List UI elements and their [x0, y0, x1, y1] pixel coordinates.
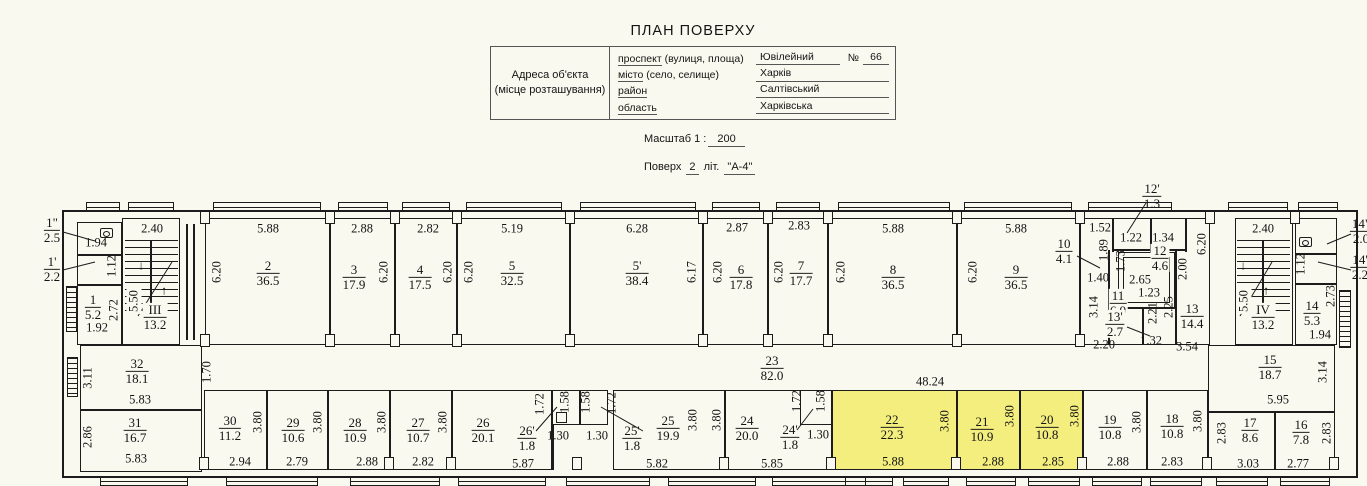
dimension-label: 5.88 [882, 455, 904, 470]
room-number: 18 [1161, 412, 1184, 427]
wall [186, 224, 188, 340]
room-number: 28 [344, 416, 367, 431]
room-number: 1" [44, 216, 60, 231]
room-label: 3011.2 [219, 414, 241, 442]
room-number: 12 [1152, 244, 1169, 259]
window [1092, 477, 1142, 486]
room-number: 24 [736, 414, 759, 429]
room-area: 13.2 [1252, 318, 1275, 332]
room-number: 11 [1110, 289, 1127, 304]
room-label: 1"2.5 [44, 216, 60, 244]
room-number: 5 [501, 259, 524, 274]
pilaster [763, 334, 773, 347]
pilaster [452, 211, 462, 224]
dimension-label: 5.95 [1267, 393, 1289, 408]
room-label: 717.7 [790, 259, 813, 287]
dimension-label: 5.83 [129, 393, 151, 408]
room-area: 32.5 [501, 274, 524, 288]
pilaster [823, 334, 833, 347]
dimension-label: ↑ [161, 284, 167, 299]
room-label: 3116.7 [124, 416, 147, 444]
room-label: IV13.2 [1251, 303, 1276, 331]
room-area: 18.1 [126, 372, 149, 386]
toilet-bowl-icon [1302, 240, 1309, 246]
room-label: 15.2 [85, 293, 101, 321]
dimension-label: 6.17 [685, 261, 700, 283]
room-label: 1910.8 [1099, 413, 1122, 441]
dimension-label: 1.72 [533, 393, 548, 415]
pilaster [698, 211, 708, 224]
room-area: 17.8 [730, 278, 753, 292]
room-label: 417.5 [409, 263, 432, 291]
dimension-label: 2.73 [1324, 285, 1339, 307]
room-area: 7.8 [1293, 433, 1310, 447]
dimension-label: 3.80 [436, 411, 451, 433]
room-area: 2.2 [44, 270, 60, 284]
pilaster [826, 457, 836, 470]
room-area: 22.3 [881, 428, 904, 442]
dimension-label: 3.80 [686, 409, 701, 431]
dimension-label: 5.85 [761, 457, 783, 472]
room-area: 36.5 [257, 274, 280, 288]
room-label: 25'1.8 [622, 424, 641, 452]
wall-hatch [67, 357, 78, 397]
room-area: 36.5 [1005, 278, 1028, 292]
window [1028, 477, 1080, 486]
room [556, 412, 567, 423]
window [350, 477, 440, 486]
room-number: 14' [1350, 253, 1367, 268]
room-area: 19.9 [657, 429, 680, 443]
room-area: 10.8 [1099, 428, 1122, 442]
room-number: 7 [790, 259, 813, 274]
pilaster [390, 334, 400, 347]
window [338, 202, 388, 212]
dimension-label: 6.20 [377, 261, 392, 283]
room-label: 2810.9 [344, 416, 367, 444]
room-number: 20 [1036, 413, 1059, 428]
room-area: 2.7 [1105, 325, 1124, 339]
room-label: 1314.4 [1181, 302, 1204, 330]
dimension-label: ↓ [138, 259, 144, 274]
dimension-label: 2.82 [417, 222, 439, 237]
dimension-label: 6.20 [966, 261, 981, 283]
room-area: 1.8 [622, 439, 641, 453]
dimension-label: 1.58 [814, 390, 829, 412]
dimension-label: 2.87 [726, 221, 748, 236]
room-label: 3218.1 [126, 357, 149, 385]
dimension-label: 1.58 [579, 391, 594, 413]
dimension-label: 1.32 [1140, 334, 1162, 349]
room-label: 2420.0 [736, 414, 759, 442]
pilaster [565, 211, 575, 224]
room-number: 13 [1181, 302, 1204, 317]
room-area: 1.8 [780, 438, 799, 452]
room-label: 124.6 [1151, 244, 1170, 272]
room-label: 2519.9 [657, 414, 680, 442]
dimension-label: 1.12 [1294, 253, 1309, 275]
window [100, 477, 188, 486]
pilaster [1205, 211, 1215, 224]
window [903, 477, 949, 486]
dimension-label: 1.12 [105, 255, 120, 277]
pilaster [572, 457, 582, 470]
dimension-label: 2.40 [141, 222, 163, 237]
room-label: 5'38.4 [626, 259, 649, 287]
pilaster [325, 334, 335, 347]
room-area: 2.0 [1350, 232, 1367, 246]
pilaster [1075, 211, 1085, 224]
room-area: 10.8 [1161, 427, 1184, 441]
dimension-label: 2.72 [107, 299, 122, 321]
dimension-label: 1.40 [1087, 271, 1109, 286]
room-area: 1.8 [517, 439, 536, 453]
wall [193, 224, 195, 340]
window [402, 202, 450, 212]
room-area: 13.2 [144, 318, 167, 332]
room-number: 14 [1304, 299, 1321, 314]
wall-hatch [66, 286, 77, 332]
room-number: 26' [517, 424, 536, 439]
room-number: 10 [1056, 237, 1073, 252]
dimension-label: 6.20 [772, 261, 787, 283]
dimension-label: 5.88 [882, 222, 904, 237]
dimension-label: 1.89 [1097, 239, 1112, 261]
room-number: 8 [882, 263, 905, 278]
pilaster [384, 457, 394, 470]
dimension-label: 3.03 [1237, 457, 1259, 472]
dimension-label: 5.82 [646, 457, 668, 472]
room-number: 25' [622, 424, 641, 439]
dimension-label: 6.28 [626, 222, 648, 237]
dimension-label: 3.80 [710, 409, 725, 431]
dimension-label: 5.19 [501, 222, 523, 237]
window [1280, 477, 1330, 486]
room-area: 4.1 [1056, 252, 1073, 266]
dimension-label: 1.30 [807, 428, 829, 443]
pilaster [1202, 457, 1212, 470]
pilaster [951, 457, 961, 470]
room-number: 12' [1142, 182, 1161, 197]
room-label: 617.8 [730, 263, 753, 291]
room-area: 10.6 [282, 431, 305, 445]
dimension-label: 3.80 [1191, 410, 1206, 432]
dimension-label: 2.85 [1042, 455, 1064, 470]
room-area: 10.9 [344, 431, 367, 445]
dimension-label: 1.58 [558, 391, 573, 413]
pilaster [952, 211, 962, 224]
window [213, 202, 321, 212]
room-label: 236.5 [257, 259, 280, 287]
window [458, 477, 546, 486]
window [712, 202, 760, 212]
dimension-label: 6.20 [834, 261, 849, 283]
wall [1185, 218, 1187, 252]
wall [1112, 218, 1114, 252]
pilaster [200, 334, 210, 347]
room-number: 13' [1105, 310, 1124, 325]
pilaster [719, 457, 729, 470]
room-label: 2710.7 [407, 416, 430, 444]
room-area: 1.3 [1142, 197, 1161, 211]
room-label: 532.5 [501, 259, 524, 287]
dimension-label: 3.80 [1068, 405, 1083, 427]
room-label: 167.8 [1293, 418, 1310, 446]
room-label: 26'1.8 [517, 424, 536, 452]
room-number: 5' [626, 259, 649, 274]
dimension-label: 2.79 [286, 455, 308, 470]
dimension-label: 1.70 [200, 361, 215, 383]
room-label: III13.2 [143, 303, 168, 331]
window [226, 477, 318, 486]
room-area: 2.2 [1350, 268, 1367, 282]
room-label: 12'1.3 [1142, 182, 1161, 210]
dimension-label: 5.87 [512, 457, 534, 472]
dimension-label: 2.82 [412, 455, 434, 470]
dimension-label: 2.83 [1161, 455, 1183, 470]
dimension-label: 2.25 [1162, 296, 1177, 318]
pilaster [823, 211, 833, 224]
dimension-label: 5.83 [125, 452, 147, 467]
window [838, 202, 950, 212]
window [964, 202, 1072, 212]
room-label: 936.5 [1005, 263, 1028, 291]
room [1295, 218, 1337, 254]
window [466, 202, 562, 212]
room-number: 31 [124, 416, 147, 431]
dimension-label: 1.22 [1120, 231, 1142, 246]
floor-plan-page: ПЛАН ПОВЕРХУ Адреса об'єкта (місце розта… [0, 0, 1367, 486]
room-area: 82.0 [761, 369, 784, 383]
room-area: 14.4 [1181, 317, 1204, 331]
dimension-label: 2.83 [1215, 422, 1230, 444]
pilaster [1290, 211, 1300, 224]
room-area: 20.1 [472, 431, 495, 445]
dimension-label: 2.77 [1287, 457, 1309, 472]
dimension-label: 6.20 [210, 261, 225, 283]
dimension-label: 1.72 [790, 390, 805, 412]
room-label: 104.1 [1056, 237, 1073, 265]
room-area: 17.5 [409, 278, 432, 292]
room-label: 178.6 [1242, 416, 1259, 444]
room-label: 1810.8 [1161, 412, 1184, 440]
dimension-label: 2.86 [81, 426, 96, 448]
room-area: 2.5 [44, 231, 60, 245]
room-area: 17.9 [343, 278, 366, 292]
room-number: 19 [1099, 413, 1122, 428]
dimension-label: 6.20 [1195, 233, 1210, 255]
room-area: 36.5 [882, 278, 905, 292]
window [86, 202, 120, 212]
dimension-label: 3.54 [1176, 340, 1198, 355]
room-area: 11.2 [219, 429, 241, 443]
room-area: 38.4 [626, 274, 649, 288]
room-area: 10.8 [1036, 428, 1059, 442]
toilet-icon [1299, 237, 1312, 247]
dimension-label: 3.80 [938, 410, 953, 432]
room-label: 13'2.7 [1104, 310, 1125, 338]
dimension-label: 2.00 [1176, 258, 1191, 280]
room-label: 2222.3 [881, 413, 904, 441]
dimension-label: 2.88 [356, 455, 378, 470]
room-area: 5.2 [85, 308, 101, 322]
room-label: 2010.8 [1036, 413, 1059, 441]
dimension-label: ↑ [1263, 284, 1269, 299]
room-area: 10.9 [971, 430, 994, 444]
room-number: 14" [1350, 217, 1367, 232]
pilaster [565, 334, 575, 347]
dimension-label: 2.20 [1093, 338, 1115, 353]
room-number: 4 [409, 263, 432, 278]
dimension-label: 2.21 [1146, 302, 1161, 324]
dimension-label: 1.94 [1309, 328, 1331, 343]
pilaster [1329, 457, 1339, 470]
dimension-label: 2.83 [788, 219, 810, 234]
pilaster [1077, 457, 1087, 470]
room-area: 18.7 [1259, 368, 1282, 382]
dimension-label: 3.80 [1130, 411, 1145, 433]
room-number: 27 [407, 416, 430, 431]
wall-hatch [1339, 290, 1351, 348]
room-number: 16 [1293, 418, 1310, 433]
window [580, 202, 696, 212]
window [128, 202, 174, 212]
dimension-label: 3.80 [251, 411, 266, 433]
dimension-label: 2.40 [1252, 222, 1274, 237]
pilaster [199, 457, 209, 470]
dimension-label: 6.20 [711, 261, 726, 283]
room-number: 25 [657, 414, 680, 429]
room-label: 145.3 [1304, 299, 1321, 327]
room-number: 24' [780, 423, 799, 438]
room-label: 2910.6 [282, 416, 305, 444]
room-number: 21 [971, 415, 994, 430]
dimension-label: 3.80 [1003, 405, 1018, 427]
window [1150, 477, 1202, 486]
window [966, 477, 1016, 486]
dimension-label: 5.50 [1237, 288, 1252, 314]
room-number: 17 [1242, 416, 1259, 431]
room-label: 836.5 [882, 263, 905, 291]
dimension-label: 2.88 [351, 222, 373, 237]
dimension-label: 1.94 [85, 236, 107, 251]
room-area: 4.6 [1152, 259, 1169, 273]
pilaster [200, 211, 210, 224]
dimension-label: 1.73 [1114, 250, 1129, 272]
room-label: 24'1.8 [780, 423, 799, 451]
room-area: 17.7 [790, 274, 813, 288]
dimension-label: 48.24 [916, 375, 944, 390]
room-label: 14'2.2 [1350, 253, 1367, 281]
window [1228, 202, 1288, 212]
room-number: 3 [343, 263, 366, 278]
dimension-label: 3.11 [81, 367, 96, 388]
dimension-label: 1.23 [1138, 286, 1160, 301]
room-number: III [144, 303, 167, 318]
room-label: 2620.1 [472, 416, 495, 444]
dimension-label: 1.30 [547, 429, 569, 444]
pilaster [452, 334, 462, 347]
room-label: 2382.0 [761, 354, 784, 382]
room-number: 9 [1005, 263, 1028, 278]
room-number: 15 [1259, 353, 1282, 368]
dimension-label: 3.80 [375, 411, 390, 433]
dimension-label: 5.88 [1005, 222, 1027, 237]
room-number: 2 [257, 259, 280, 274]
room-number: 30 [219, 414, 241, 429]
floor-plan: 2.405.882.882.825.196.282.872.835.885.88… [0, 0, 1367, 486]
room-area: 16.7 [124, 431, 147, 445]
room-label: 1518.7 [1259, 353, 1282, 381]
pilaster [952, 334, 962, 347]
dimension-label: 2.83 [1320, 422, 1335, 444]
pilaster [325, 211, 335, 224]
dimension-label: 2.88 [1107, 455, 1129, 470]
dimension-label: 1.92 [86, 321, 108, 336]
pilaster [763, 211, 773, 224]
room-number: 29 [282, 416, 305, 431]
window [776, 202, 820, 212]
room-number: 23 [761, 354, 784, 369]
room-label: 1'2.2 [44, 255, 60, 283]
room-area: 20.0 [736, 429, 759, 443]
dimension-label: 2.94 [229, 455, 251, 470]
dimension-label: 5.50 [127, 288, 142, 314]
room-number: 22 [881, 413, 904, 428]
room-label: 2110.9 [971, 415, 994, 443]
pilaster [390, 211, 400, 224]
dimension-label: 3.14 [1087, 296, 1102, 318]
dimension-label: 1.52 [1089, 221, 1111, 236]
room-label: 317.9 [343, 263, 366, 291]
room-number: 1 [85, 293, 101, 308]
window [566, 477, 650, 486]
room-area: 8.6 [1242, 431, 1259, 445]
dimension-label: 6.20 [462, 261, 477, 283]
room-label: 14"2.0 [1350, 217, 1367, 245]
room-number: 26 [472, 416, 495, 431]
room-area: 5.3 [1304, 314, 1321, 328]
room-number: 6 [730, 263, 753, 278]
pilaster [698, 334, 708, 347]
dimension-label: 3.14 [1316, 361, 1331, 383]
dimension-label: 1.30 [586, 429, 608, 444]
window [1216, 477, 1268, 486]
room-area: 10.7 [407, 431, 430, 445]
room-number: 32 [126, 357, 149, 372]
dimension-label: 3.80 [311, 411, 326, 433]
dimension-label: 1.72 [605, 392, 620, 414]
dimension-label: 2.88 [982, 455, 1004, 470]
dimension-label: ↓ [1240, 259, 1246, 274]
pilaster [446, 457, 456, 470]
room-number: 1' [44, 255, 60, 270]
window [845, 477, 893, 486]
room-number: IV [1252, 303, 1275, 318]
window [1298, 202, 1338, 212]
window [668, 477, 756, 486]
pilaster [1075, 334, 1085, 347]
dimension-label: 6.20 [441, 261, 456, 283]
dimension-label: 5.88 [257, 222, 279, 237]
